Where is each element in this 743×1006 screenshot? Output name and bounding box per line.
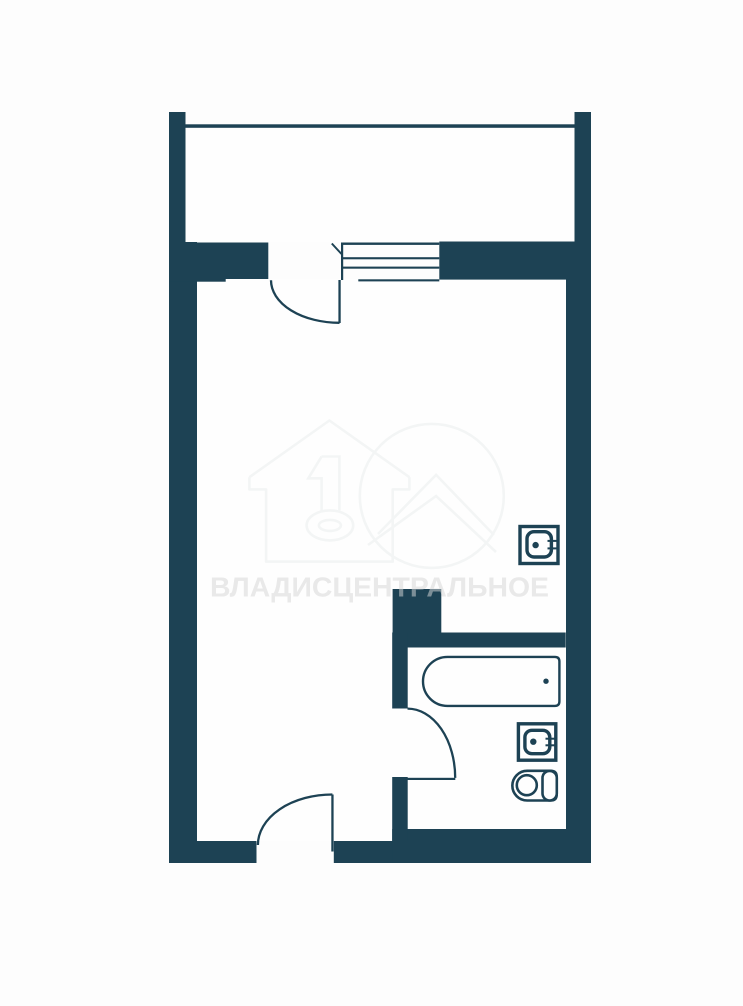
svg-text:ВЛАДИСЦЕНТРАЛЬНОЕ: ВЛАДИСЦЕНТРАЛЬНОЕ [210, 572, 549, 603]
